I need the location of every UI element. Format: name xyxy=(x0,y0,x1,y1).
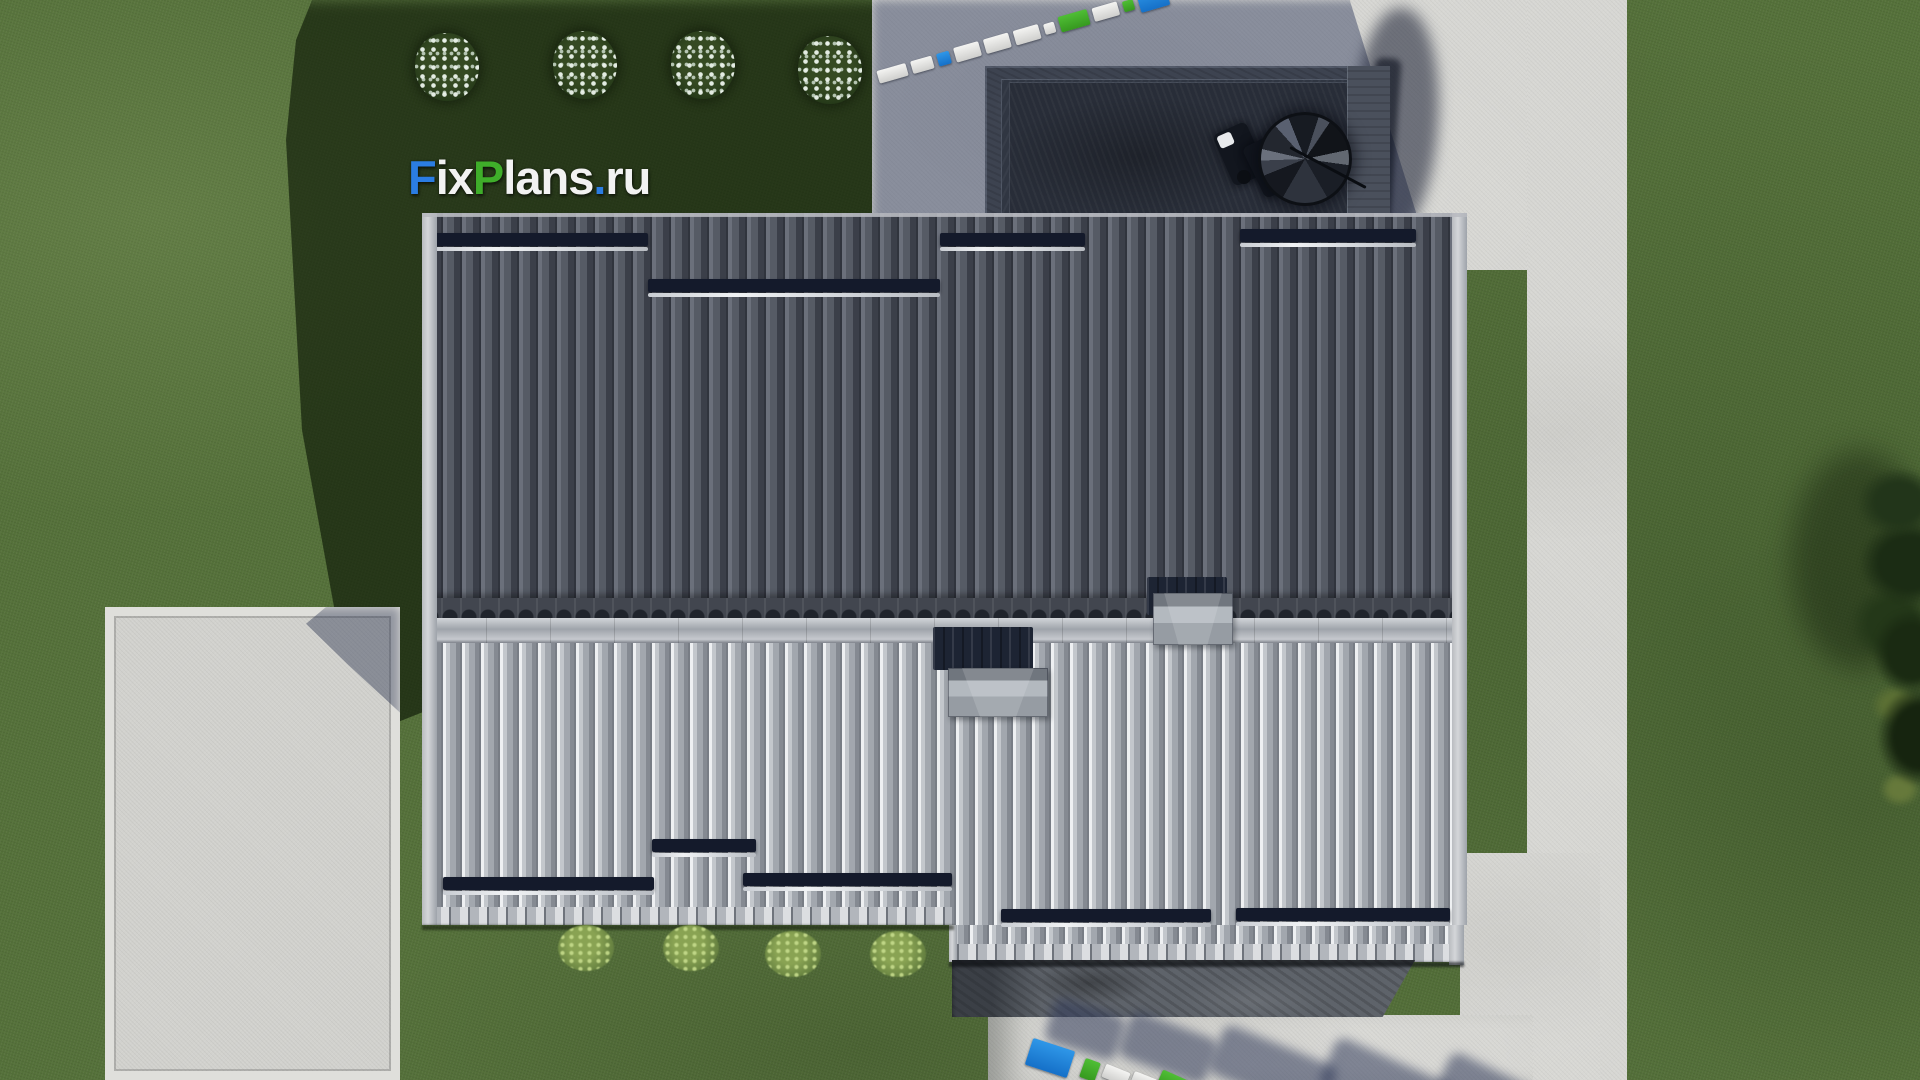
snow-guard xyxy=(1240,229,1416,247)
gable-trim-right xyxy=(1452,213,1467,925)
gable-trim-left xyxy=(422,213,437,925)
green-bush xyxy=(870,931,926,977)
aerial-roof-render: FixPlans.ru xyxy=(0,0,1920,1080)
watermark-block xyxy=(1043,21,1057,35)
gable-trim xyxy=(949,925,957,962)
snow-guard xyxy=(940,233,1085,251)
snow-guard xyxy=(1236,908,1450,926)
flowering-bush xyxy=(415,33,479,101)
logo-segment: F xyxy=(408,151,436,204)
dormer-shadow-tiles xyxy=(933,627,1033,670)
snow-guard xyxy=(743,873,952,891)
green-bush xyxy=(765,931,821,977)
snow-guard xyxy=(430,233,648,251)
stone-patio-bottom xyxy=(952,960,1415,1017)
roof-dormer-vent xyxy=(948,668,1048,717)
roof-back-slope xyxy=(422,213,1467,598)
terrace-patio xyxy=(985,66,1390,216)
fixplans-logo: FixPlans.ru xyxy=(408,152,650,204)
roof-top-edge xyxy=(422,213,1467,217)
flowering-bush xyxy=(798,36,862,104)
roof-dormer-vent xyxy=(1153,593,1233,645)
watermark-block xyxy=(1012,23,1041,45)
logo-segment: lans xyxy=(503,151,593,204)
terrace-step-right xyxy=(1347,66,1390,216)
driveway-pad xyxy=(105,607,400,1080)
watermark-block xyxy=(1091,1,1120,22)
watermark-block xyxy=(1057,9,1090,33)
watermark-block xyxy=(936,50,952,66)
logo-segment: . xyxy=(593,151,605,204)
snow-guard xyxy=(443,877,654,895)
snow-guard xyxy=(1001,909,1211,927)
gable-trim xyxy=(1449,925,1464,965)
snow-guard xyxy=(648,279,940,297)
watermark-block xyxy=(983,32,1012,54)
logo-segment: ix xyxy=(436,151,473,204)
green-bush xyxy=(558,925,614,971)
spiral-staircase xyxy=(1258,112,1352,206)
ridge-tile-ends xyxy=(422,598,1467,618)
watermark-block xyxy=(1122,0,1136,12)
logo-segment: ru xyxy=(605,151,650,204)
tree-foliage xyxy=(1852,600,1920,810)
eave-tile-ends xyxy=(422,907,952,925)
logo-segment: P xyxy=(473,151,503,204)
patio-table xyxy=(1237,170,1251,184)
snow-guard xyxy=(652,839,756,857)
watermark-block xyxy=(953,41,982,63)
lounger-pillow xyxy=(1216,131,1235,149)
eave-shadow xyxy=(949,962,1464,967)
watermark-block xyxy=(910,55,935,74)
flowering-bush xyxy=(671,31,735,99)
eave-tile-ends xyxy=(949,944,1464,962)
green-bush xyxy=(663,925,719,971)
watermark-block xyxy=(876,62,908,83)
flowering-bush xyxy=(553,31,617,99)
